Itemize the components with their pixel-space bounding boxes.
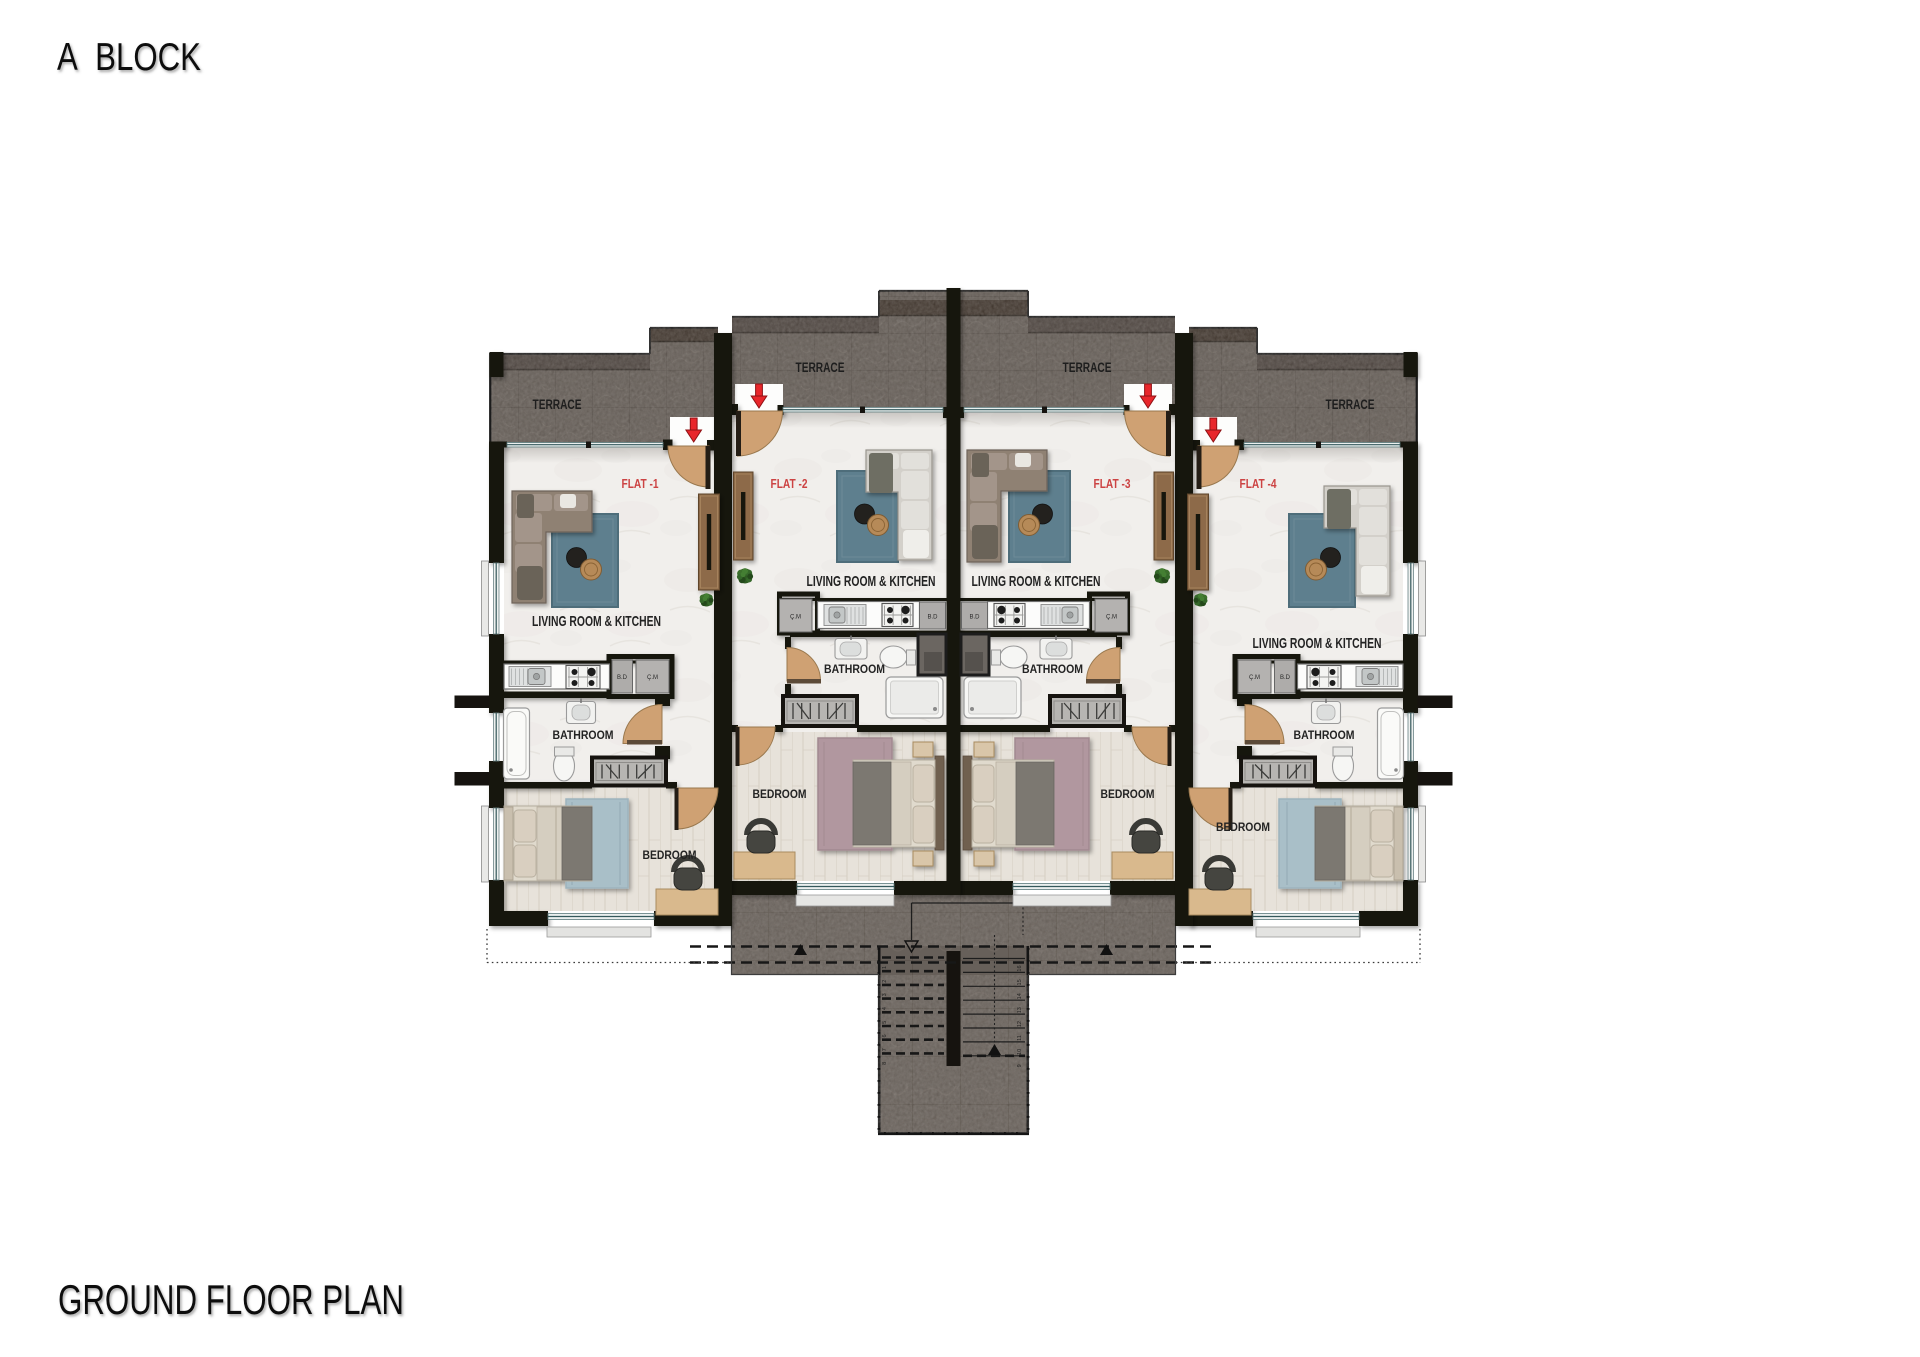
svg-text:6: 6 xyxy=(882,1034,888,1037)
svg-text:LIVING ROOM & KITCHEN: LIVING ROOM & KITCHEN xyxy=(972,573,1101,590)
svg-text:14: 14 xyxy=(1017,993,1023,999)
svg-text:1: 1 xyxy=(882,966,888,969)
svg-text:16: 16 xyxy=(1017,965,1023,971)
svg-text:LIVING ROOM & KITCHEN: LIVING ROOM & KITCHEN xyxy=(532,613,661,630)
svg-text:LIVING ROOM & KITCHEN: LIVING ROOM & KITCHEN xyxy=(807,573,936,590)
svg-text:8: 8 xyxy=(882,1062,888,1065)
svg-text:TERRACE: TERRACE xyxy=(1063,360,1112,375)
svg-text:TERRACE: TERRACE xyxy=(533,397,582,412)
svg-text:LIVING ROOM & KITCHEN: LIVING ROOM & KITCHEN xyxy=(1253,635,1382,652)
svg-text:BATHROOM: BATHROOM xyxy=(824,664,885,676)
svg-text:FLAT -1: FLAT -1 xyxy=(622,477,659,491)
svg-text:Ç.M: Ç.M xyxy=(790,615,801,621)
svg-text:BEDROOM: BEDROOM xyxy=(643,850,697,862)
svg-text:B.D: B.D xyxy=(1280,675,1291,681)
svg-text:11: 11 xyxy=(1017,1035,1023,1041)
svg-text:Ç.M: Ç.M xyxy=(1106,615,1117,621)
svg-text:FLAT -4: FLAT -4 xyxy=(1240,477,1277,491)
svg-text:B.D: B.D xyxy=(617,675,628,681)
svg-text:2: 2 xyxy=(882,980,888,983)
svg-text:BEDROOM: BEDROOM xyxy=(753,789,807,801)
svg-text:A BLOCK: A BLOCK xyxy=(57,36,201,79)
svg-text:BATHROOM: BATHROOM xyxy=(1022,664,1083,676)
svg-text:15: 15 xyxy=(1017,979,1023,985)
svg-text:4: 4 xyxy=(882,1007,888,1010)
svg-text:FLAT -2: FLAT -2 xyxy=(771,477,808,491)
svg-text:TERRACE: TERRACE xyxy=(1326,397,1375,412)
svg-text:Ç.M: Ç.M xyxy=(1249,675,1260,681)
svg-text:BATHROOM: BATHROOM xyxy=(553,730,614,742)
svg-text:12: 12 xyxy=(1017,1021,1023,1027)
svg-text:BATHROOM: BATHROOM xyxy=(1294,730,1355,742)
svg-text:Ç.M: Ç.M xyxy=(647,675,658,681)
svg-text:B.D: B.D xyxy=(969,615,980,621)
svg-text:7: 7 xyxy=(882,1048,888,1051)
svg-text:5: 5 xyxy=(882,1021,888,1024)
svg-text:9: 9 xyxy=(1017,1064,1023,1067)
svg-text:BEDROOM: BEDROOM xyxy=(1101,789,1155,801)
svg-text:10: 10 xyxy=(1017,1049,1023,1055)
svg-text:3: 3 xyxy=(882,993,888,996)
svg-text:B.D: B.D xyxy=(927,615,938,621)
svg-text:GROUND FLOOR PLAN: GROUND FLOOR PLAN xyxy=(58,1276,404,1323)
svg-text:13: 13 xyxy=(1017,1007,1023,1013)
svg-text:BEDROOM: BEDROOM xyxy=(1216,822,1270,834)
svg-text:FLAT -3: FLAT -3 xyxy=(1094,477,1131,491)
svg-text:TERRACE: TERRACE xyxy=(796,360,845,375)
